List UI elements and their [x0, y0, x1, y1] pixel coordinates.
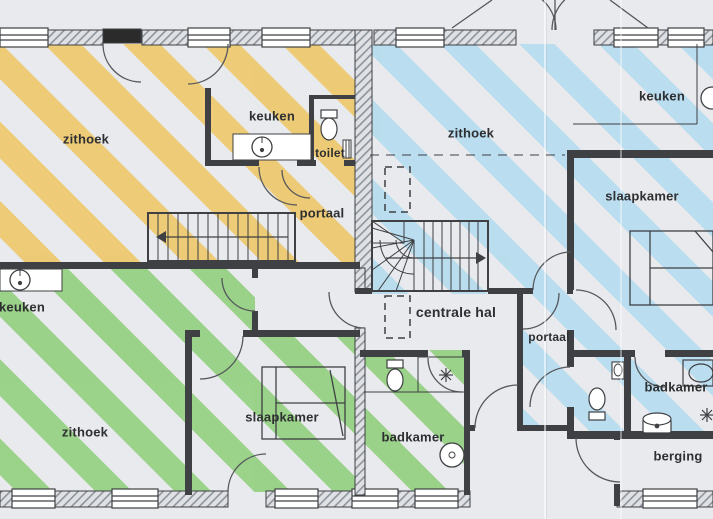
door-arc — [329, 292, 365, 328]
porch-line — [610, 0, 648, 28]
room-label-green-keuken: keuken — [0, 300, 45, 315]
kitchen-counter-green — [0, 269, 62, 291]
room-label-centrale-hal: centrale hal — [416, 304, 496, 320]
room-label-blue-portaal: portaal — [528, 330, 569, 344]
door-arc — [516, 0, 556, 30]
room-label-green-zithoek: zithoek — [62, 425, 108, 440]
room-label-yellow-keuken: keuken — [249, 109, 295, 124]
toilet-icon — [321, 110, 337, 140]
room-label-yellow-zithoek: zithoek — [63, 132, 109, 147]
toilet-icon — [589, 388, 605, 420]
shower-drain-icon — [439, 368, 453, 382]
floorplan-drawing — [0, 0, 713, 519]
boiler-icon — [643, 413, 671, 433]
sink-icon — [252, 137, 272, 157]
exterior-wall-top — [48, 29, 713, 45]
room-label-blue-keuken: keuken — [639, 89, 685, 104]
door-arc — [475, 385, 518, 428]
room-label-blue-berging: berging — [653, 449, 702, 464]
door-arc — [552, 0, 594, 30]
door-arc — [576, 438, 620, 482]
room-label-yellow-portaal: portaal — [300, 206, 345, 221]
porch-line — [452, 0, 492, 28]
room-label-green-slaapkamer: slaapkamer — [245, 410, 319, 425]
floorplan: zithoek keuken toilet portaal zithoek ke… — [0, 0, 713, 519]
room-label-blue-badkamer: badkamer — [644, 380, 707, 395]
room-label-blue-zithoek: zithoek — [448, 126, 494, 141]
sink-icon — [10, 270, 30, 290]
party-wall-yellow-blue — [355, 30, 372, 292]
toilet-icon — [387, 360, 403, 391]
doormat — [103, 29, 141, 43]
room-label-yellow-toilet: toilet — [315, 146, 345, 160]
shaft-dashed-box — [385, 296, 410, 338]
washbasin-icon — [440, 443, 464, 467]
room-label-blue-slaapkamer: slaapkamer — [605, 189, 679, 204]
washbasin-icon — [612, 362, 624, 379]
room-label-green-badkamer: badkamer — [381, 430, 444, 445]
